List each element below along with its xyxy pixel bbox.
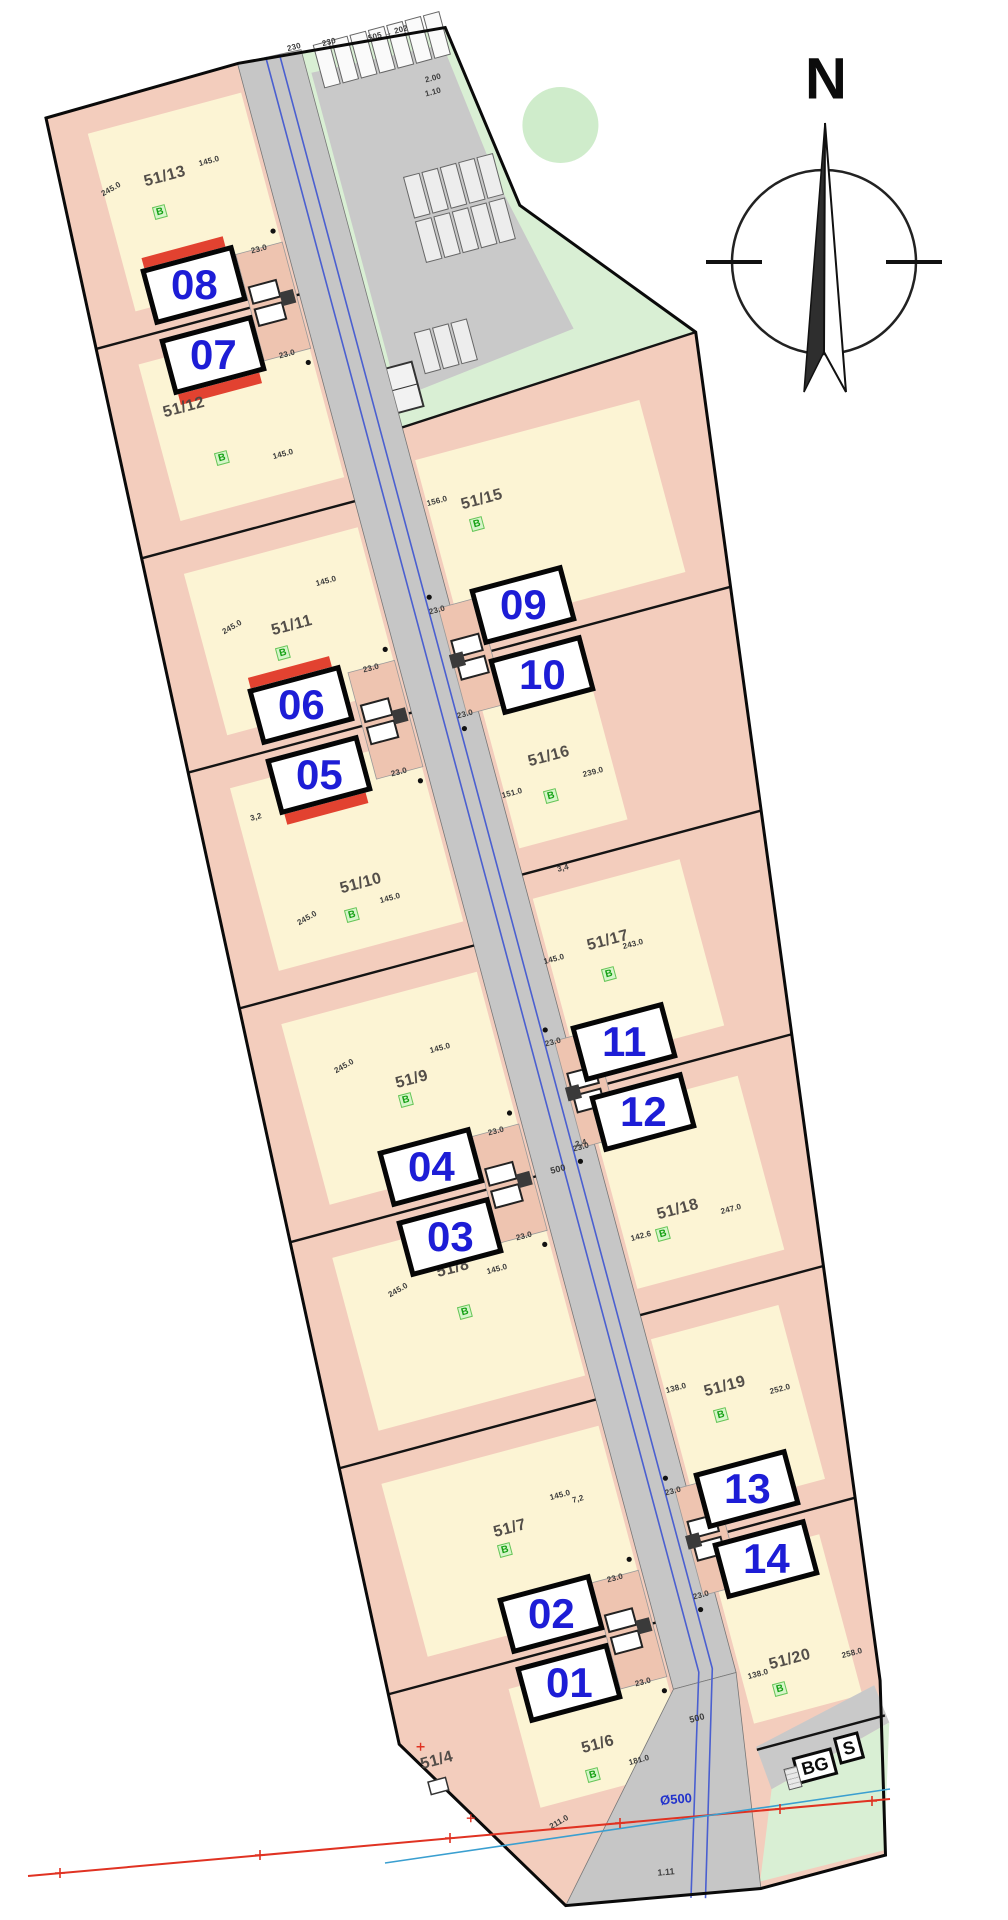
house-number-box: 04 bbox=[377, 1127, 485, 1208]
b-marker: B bbox=[655, 1226, 671, 1242]
parcel-dimension: 245.0 bbox=[332, 1057, 355, 1075]
house-number: 04 bbox=[408, 1146, 455, 1188]
garage-dimension: 23.0 bbox=[456, 708, 474, 721]
house-number: 08 bbox=[171, 264, 218, 306]
house-number-box: 14 bbox=[712, 1519, 820, 1600]
b-marker: B bbox=[601, 966, 617, 982]
parcel-label: 51/12 bbox=[161, 394, 207, 422]
house-number: 10 bbox=[519, 654, 566, 696]
garage-dimension: 23.0 bbox=[664, 1484, 682, 1497]
frontage-dimension: 3,2 bbox=[249, 811, 263, 823]
parcel-dimension: 138.0 bbox=[747, 1667, 770, 1681]
garage-dimension: 23.0 bbox=[390, 765, 408, 778]
house-number: 01 bbox=[546, 1662, 593, 1704]
b-marker: B bbox=[152, 204, 168, 220]
parcel-label: 51/18 bbox=[655, 1195, 701, 1223]
parcel-label: 51/11 bbox=[269, 612, 314, 640]
house-number: 12 bbox=[619, 1091, 666, 1133]
house-number-box: 11 bbox=[570, 1002, 678, 1083]
parcel-label: 51/15 bbox=[459, 486, 505, 514]
north-label: N bbox=[805, 46, 847, 113]
b-marker: B bbox=[344, 907, 360, 923]
garage-dimension: 23.0 bbox=[428, 603, 446, 616]
parcel-dimension: 138.0 bbox=[664, 1381, 687, 1395]
house-number-box: 07 bbox=[159, 314, 267, 395]
house-number-box: 03 bbox=[396, 1196, 504, 1277]
road-dimension: 500 bbox=[688, 1711, 706, 1725]
b-marker: B bbox=[398, 1092, 414, 1108]
parcel-dimension: 156.0 bbox=[425, 494, 448, 508]
house-number-box: 01 bbox=[515, 1643, 623, 1724]
compass-needle-dark bbox=[804, 123, 825, 392]
parcel-label: 51/16 bbox=[526, 743, 572, 771]
garage-dimension: 23.0 bbox=[606, 1571, 624, 1584]
house-number-box: 10 bbox=[488, 634, 596, 715]
parcel-dimension: 145.0 bbox=[378, 891, 401, 905]
pipe-dimension-label: 1.11 bbox=[657, 1866, 675, 1877]
b-marker: B bbox=[496, 1542, 512, 1558]
parcel-dimension: 145.0 bbox=[429, 1041, 452, 1055]
garage-dimension: 23.0 bbox=[278, 347, 296, 360]
b-marker: B bbox=[457, 1304, 473, 1320]
frontage-dimension: 7,2 bbox=[571, 1493, 585, 1505]
b-marker: B bbox=[469, 516, 485, 532]
house-number: 09 bbox=[500, 584, 547, 626]
parcel-label: 51/7 bbox=[492, 1516, 529, 1542]
house-number: 03 bbox=[426, 1216, 473, 1258]
compass-north: N bbox=[670, 50, 970, 410]
parcel-dimension: 145.0 bbox=[543, 952, 566, 966]
parcel-dimension: 145.0 bbox=[486, 1261, 509, 1275]
house-number: 14 bbox=[742, 1538, 789, 1580]
parcel-dimension: 151.0 bbox=[501, 786, 524, 800]
garage-dimension: 23.0 bbox=[250, 243, 268, 256]
compass-needle-light bbox=[824, 123, 846, 392]
house-number-box: 13 bbox=[693, 1449, 801, 1530]
house-number-box: 09 bbox=[470, 565, 578, 646]
pipe-diameter-label: Ø500 bbox=[660, 1790, 693, 1808]
b-marker: B bbox=[543, 788, 559, 804]
parcel-dimension: 245.0 bbox=[221, 618, 244, 636]
parking-dimension: 230 bbox=[286, 41, 302, 53]
house-number: 06 bbox=[277, 684, 324, 726]
parcel-label: 51/19 bbox=[702, 1372, 748, 1400]
house-number: 07 bbox=[190, 334, 237, 376]
garage-dimension: 23.0 bbox=[634, 1675, 652, 1688]
parcel-dimension: 145.0 bbox=[314, 574, 337, 588]
parcel-dimension: 245.0 bbox=[99, 180, 122, 198]
b-marker: B bbox=[214, 450, 230, 466]
parcel-label: 51/13 bbox=[143, 163, 189, 191]
parking-dimension: 505 → 202 bbox=[367, 23, 409, 42]
parcel-dimension: 258.0 bbox=[841, 1646, 864, 1660]
parking-dimension: 230 bbox=[321, 36, 337, 48]
house-number-box: 12 bbox=[589, 1071, 697, 1152]
parcel-label: 51/10 bbox=[338, 869, 384, 897]
house-number: 05 bbox=[296, 754, 343, 796]
house-number: 02 bbox=[527, 1593, 574, 1635]
parcel-dimension: 239.0 bbox=[582, 765, 605, 779]
garage-dimension: 23.0 bbox=[487, 1125, 505, 1138]
parcel-label: 51/6 bbox=[580, 1732, 617, 1758]
parcel-dimension: 245.0 bbox=[296, 909, 319, 927]
road-dimension: 500 bbox=[549, 1163, 567, 1177]
house-number-box: 05 bbox=[266, 734, 374, 815]
parcel-dimension: 145.0 bbox=[197, 154, 220, 168]
parcel-label: 51/20 bbox=[767, 1646, 813, 1674]
frontage-dimension: 3,4 bbox=[556, 862, 570, 874]
house-number: 11 bbox=[602, 1021, 646, 1063]
garage-dimension: 23.0 bbox=[692, 1589, 710, 1602]
parcel-dimension: 145.0 bbox=[549, 1488, 572, 1502]
b-marker: B bbox=[772, 1681, 788, 1697]
parking-dimension: 1.10 bbox=[424, 85, 442, 98]
site-plan-page: 51/13B245.0145.051/12B145.051/11B245.014… bbox=[0, 0, 1008, 1920]
parcel-dimension: 247.0 bbox=[720, 1202, 743, 1216]
utility-lines bbox=[0, 1760, 1008, 1920]
house-number-box: 02 bbox=[497, 1573, 605, 1654]
house-number-box: 06 bbox=[247, 665, 355, 746]
parking-dimension: 2.00 bbox=[424, 72, 442, 85]
parcel-dimension: 142.6 bbox=[630, 1229, 653, 1243]
b-marker: B bbox=[275, 645, 291, 661]
parcel-dimension: 145.0 bbox=[272, 447, 295, 461]
garage-dimension: 23.0 bbox=[515, 1229, 533, 1242]
house-number-box: 08 bbox=[141, 245, 249, 326]
garage-dimension: 23.0 bbox=[544, 1036, 562, 1049]
parcel-dimension: 252.0 bbox=[769, 1382, 792, 1396]
parcel-dimension: 245.0 bbox=[386, 1281, 409, 1299]
house-number: 13 bbox=[724, 1468, 771, 1510]
parcel-label: 51/9 bbox=[393, 1067, 430, 1093]
b-marker: B bbox=[713, 1407, 729, 1423]
garage-dimension: 23.0 bbox=[362, 661, 380, 674]
